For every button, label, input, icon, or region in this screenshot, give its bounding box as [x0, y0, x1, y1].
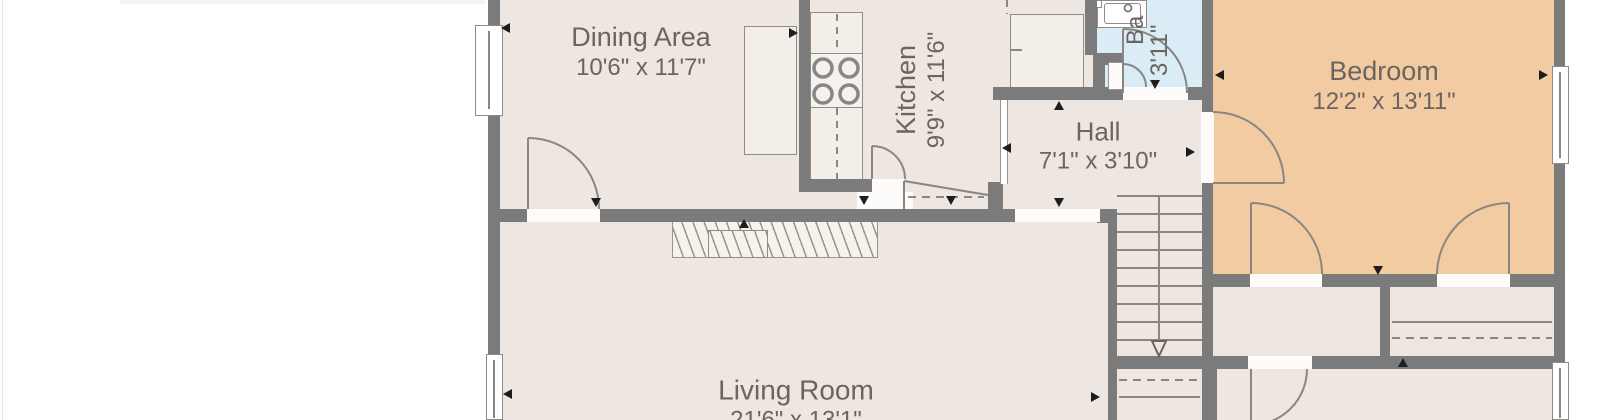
measure-marker — [789, 28, 798, 38]
room-dims: 12'2" x 13'11" — [1312, 88, 1455, 116]
measure-marker — [1054, 198, 1064, 207]
measure-marker — [1186, 147, 1195, 157]
dining-door — [528, 138, 599, 209]
measure-marker — [946, 196, 956, 205]
bedroom-room-label: Bedroom 12'2" x 13'11" — [1312, 56, 1455, 116]
room-name: Hall — [1039, 117, 1157, 148]
linen-door — [1123, 64, 1146, 87]
measure-marker — [1150, 80, 1160, 89]
measure-marker — [1091, 392, 1100, 402]
measure-marker — [1539, 70, 1548, 80]
bathroom-dims-partial: 3'11" — [1146, 25, 1174, 76]
measure-marker — [1002, 143, 1011, 153]
measure-marker — [591, 198, 601, 207]
room-name: Kitchen — [891, 32, 923, 149]
room-name: Bedroom — [1312, 56, 1455, 88]
hall-room-label: Hall 7'1" x 3'10" — [1039, 117, 1157, 176]
measure-marker — [859, 196, 869, 205]
kitchen-room-label: Kitchen 9'9" x 11'6" — [891, 32, 951, 149]
closet-left-door — [1251, 203, 1322, 274]
rear-room-door — [1251, 369, 1307, 420]
room-dims: 21'6" x 13'1" — [718, 406, 874, 420]
bedroom-door — [1213, 112, 1284, 183]
living-room-label: Living Room 21'6" x 13'1" — [718, 373, 874, 420]
sink-faucet — [1125, 5, 1132, 12]
room-dims: 10'6" x 11'7" — [571, 54, 711, 82]
stove-burners — [814, 59, 858, 103]
room-dims: 7'1" x 3'10" — [1039, 147, 1157, 175]
measure-marker — [1398, 358, 1408, 367]
stairs-down-arrow — [1152, 341, 1166, 356]
measure-marker — [501, 23, 510, 33]
floorplan-image: Dining Area 10'6" x 11'7" Kitchen 9'9" x… — [0, 0, 1600, 420]
room-name: Dining Area — [571, 22, 711, 54]
measure-marker — [739, 219, 749, 228]
measure-marker — [1373, 266, 1383, 275]
measure-marker — [1054, 101, 1064, 110]
kitchen-door — [872, 146, 905, 179]
dining-room-label: Dining Area 10'6" x 11'7" — [571, 22, 711, 82]
closet-right-door — [1437, 203, 1509, 274]
measure-marker — [1215, 70, 1224, 80]
measure-marker — [503, 389, 512, 399]
room-dims: 9'9" x 11'6" — [923, 32, 951, 149]
room-name: Living Room — [718, 373, 874, 406]
